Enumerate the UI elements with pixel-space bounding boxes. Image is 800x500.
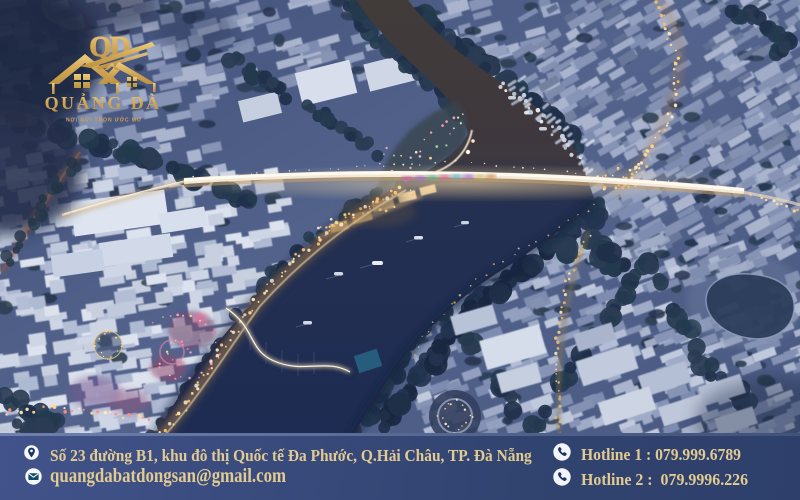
svg-text:NƠI GỬI TRỌN ƯỚC MƠ: NƠI GỬI TRỌN ƯỚC MƠ — [66, 116, 142, 124]
svg-text:QUẢNG ĐÀ: QUẢNG ĐÀ — [45, 92, 162, 113]
